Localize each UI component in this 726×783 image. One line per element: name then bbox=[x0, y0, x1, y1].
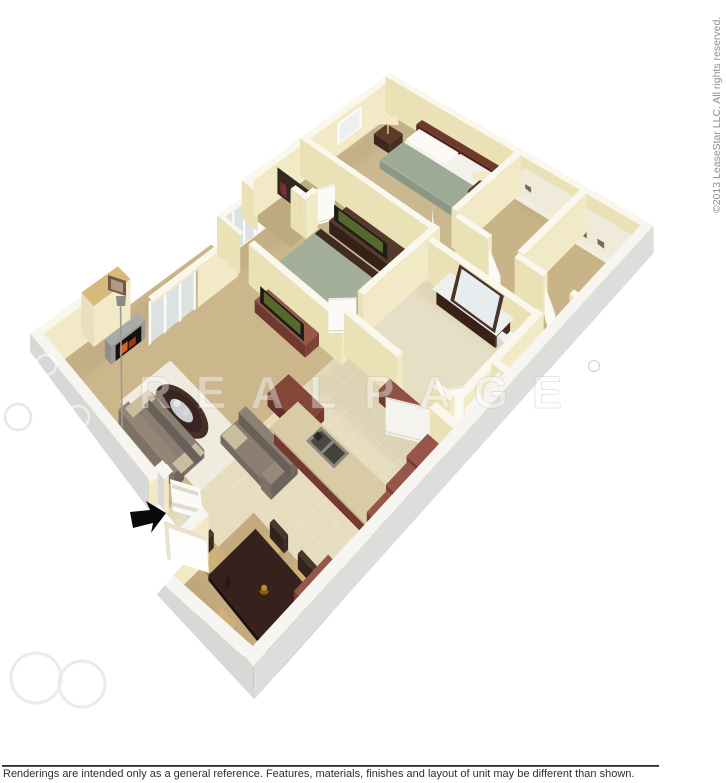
svg-text:E: E bbox=[196, 367, 226, 418]
svg-text:R: R bbox=[139, 367, 172, 418]
svg-text:©2013 LeaseStar LLC. All right: ©2013 LeaseStar LLC. All rights reserved… bbox=[711, 17, 723, 213]
svg-text:P: P bbox=[364, 367, 394, 418]
svg-text:A: A bbox=[419, 367, 452, 418]
svg-text:A: A bbox=[251, 367, 284, 418]
svg-text:E: E bbox=[532, 367, 562, 418]
svg-text:L: L bbox=[309, 367, 337, 418]
svg-text:G: G bbox=[473, 367, 508, 418]
svg-text:Renderings are intended only a: Renderings are intended only as a genera… bbox=[3, 768, 634, 780]
